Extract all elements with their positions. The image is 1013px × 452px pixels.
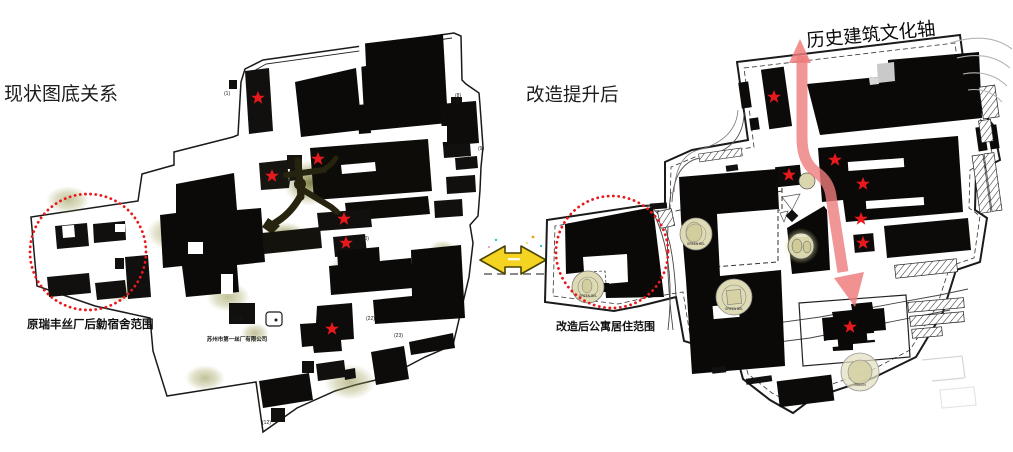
- svg-text:(23): (23): [394, 333, 403, 339]
- svg-text:改造提升后: 改造提升后: [526, 84, 619, 105]
- svg-text:(1): (1): [224, 91, 230, 97]
- svg-text:GREEN BEL: GREEN BEL: [579, 294, 597, 298]
- svg-text:苏州市第一丝厂有限公司: 苏州市第一丝厂有限公司: [207, 335, 268, 343]
- svg-text:GREEN: GREEN: [795, 234, 807, 238]
- svg-text:(12): (12): [262, 420, 271, 426]
- svg-text:改造后公寓居住范围: 改造后公寓居住范围: [556, 319, 655, 333]
- svg-text:GREEN BEL: GREEN BEL: [687, 242, 705, 246]
- svg-text:GREEN: GREEN: [854, 383, 866, 387]
- svg-text:现状图底关系: 现状图底关系: [4, 83, 118, 105]
- svg-text:(22): (22): [366, 316, 375, 322]
- svg-text:(8): (8): [455, 93, 461, 99]
- svg-text:厅字: 厅字: [233, 316, 243, 323]
- svg-text:(9): (9): [478, 146, 484, 152]
- svg-text:(10): (10): [360, 236, 369, 242]
- svg-text:GREEN BEL: GREEN BEL: [725, 307, 743, 311]
- svg-text:原瑞丰丝厂后勨宿舍范围: 原瑞丰丝厂后勨宿舍范围: [27, 317, 154, 331]
